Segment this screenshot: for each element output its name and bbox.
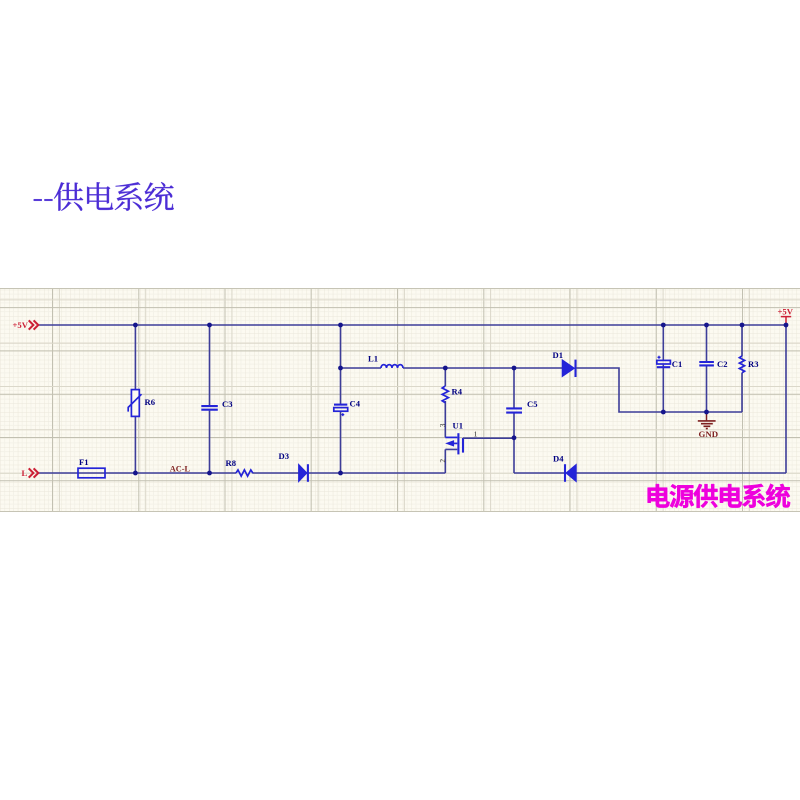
svg-text:L: L bbox=[22, 468, 28, 478]
svg-text:D1: D1 bbox=[553, 350, 564, 360]
svg-text:R4: R4 bbox=[452, 386, 463, 396]
svg-text:1: 1 bbox=[474, 430, 478, 439]
svg-text:D3: D3 bbox=[279, 451, 290, 461]
svg-text:F1: F1 bbox=[79, 457, 89, 467]
svg-text:AC-L: AC-L bbox=[170, 465, 191, 474]
svg-text:C1: C1 bbox=[672, 359, 683, 369]
svg-text:2: 2 bbox=[438, 459, 447, 463]
svg-text:R6: R6 bbox=[145, 397, 156, 407]
svg-text:D4: D4 bbox=[553, 453, 564, 463]
svg-text:R8: R8 bbox=[226, 458, 237, 468]
svg-text:R3: R3 bbox=[748, 359, 759, 369]
svg-text:C3: C3 bbox=[222, 399, 233, 409]
svg-text:3: 3 bbox=[438, 423, 447, 427]
svg-text:+5V: +5V bbox=[778, 307, 794, 317]
svg-text:C2: C2 bbox=[717, 359, 728, 369]
svg-text:C5: C5 bbox=[527, 399, 538, 409]
svg-text:U1: U1 bbox=[453, 421, 464, 431]
svg-text:GND: GND bbox=[699, 429, 719, 439]
svg-text:+5V: +5V bbox=[13, 320, 29, 330]
svg-text:L1: L1 bbox=[368, 353, 378, 363]
svg-text:C4: C4 bbox=[350, 398, 361, 408]
